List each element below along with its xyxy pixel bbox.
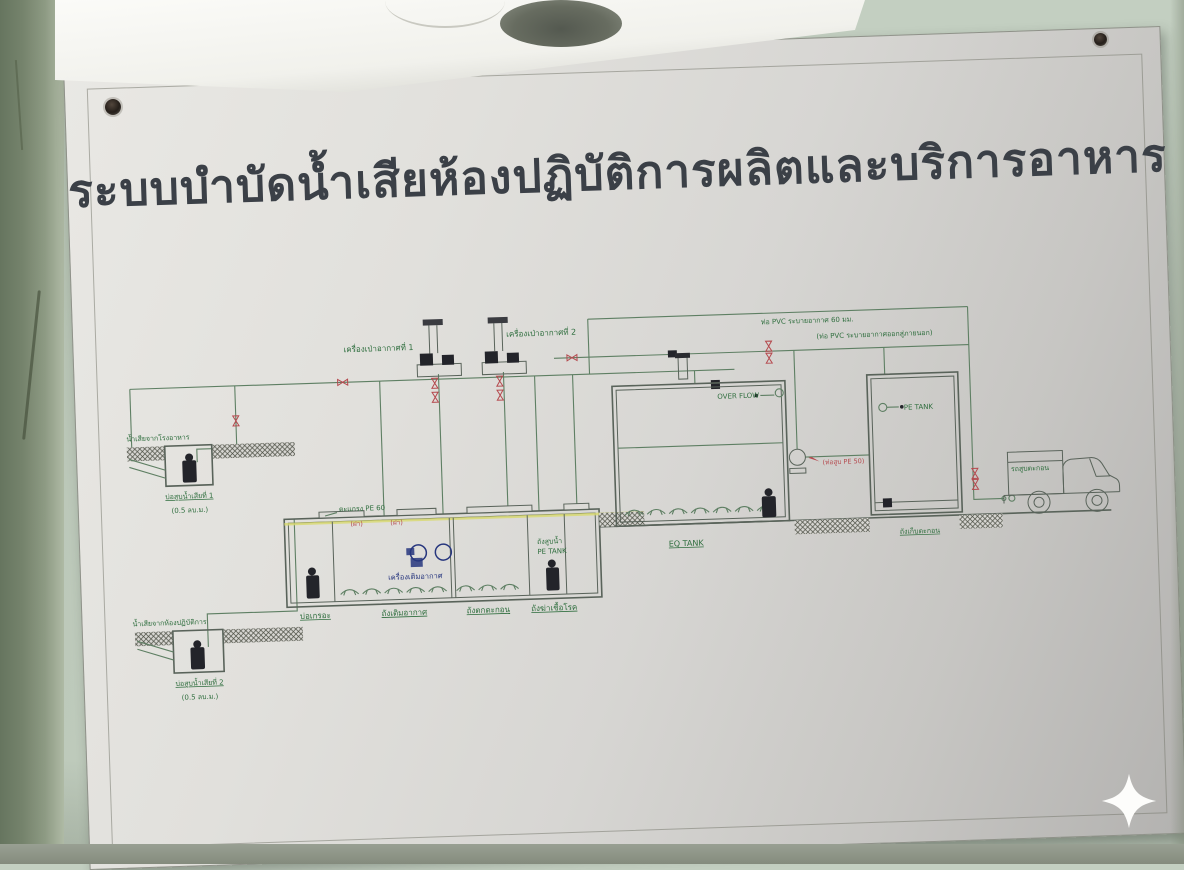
label-compartment-2: ถังเติมอากาศ (381, 608, 427, 619)
diagram-svg: เครื่องเป่าอากาศที่ 1 เครื่องเป่าอากาศที… (100, 286, 1143, 740)
label-pit1-source: น้ำเสียจากโรงอาหาร (126, 430, 190, 443)
label-vent-note-2: (ท่อ PVC ระบายอากาศออกสู่ภายนอก) (816, 329, 933, 341)
sparkle-icon (1098, 770, 1160, 832)
label-tank1-inner: OVER FLOW (717, 392, 759, 401)
signboard: ระบบบำบัดน้ำเสียห้องปฏิบัติการผลิตและบริ… (63, 26, 1184, 870)
board-bottom-edge (0, 844, 1184, 864)
treatment-tank (284, 501, 647, 607)
label-blower-1: เครื่องเป่าอากาศที่ 1 (343, 341, 413, 354)
sump-pit-1 (127, 442, 296, 488)
label-clearwell-2: PE TANK (537, 547, 567, 556)
sludge-tank (867, 371, 1003, 532)
air-blower-2 (481, 316, 527, 374)
label-aerator-blue: เครื่องเติมอากาศ (388, 570, 443, 582)
valves (231, 334, 979, 514)
label-clearwell-1: ถังสูบน้ำ (537, 534, 563, 546)
screw-top-left (105, 99, 121, 115)
label-vent-note-1: ท่อ PVC ระบายอากาศ 60 มม. (761, 315, 854, 326)
screw-top-right (1094, 33, 1107, 46)
label-pit2-source: น้ำเสียจากห้องปฏิบัติการ (132, 615, 207, 628)
label-compartment-3: ถังตกตะกอน (466, 605, 510, 615)
label-pit1-volume: (0.5 ลบ.ม.) (171, 506, 208, 515)
label-cover-tag-2: (ฝา) (390, 518, 403, 526)
fixture-seam (385, 0, 505, 28)
eq-tank (611, 350, 790, 527)
label-blower-2: เครื่องเป่าอากาศที่ 2 (506, 326, 576, 339)
air-blower-1 (416, 318, 462, 376)
label-pump-note: (ท่อสูบ PE 50) (822, 457, 864, 466)
label-cover-tag-1: (ฝา) (350, 520, 363, 528)
label-tank2-name: ถังเก็บตะกอน (900, 526, 941, 536)
label-pit2-name: บ่อสูบน้ำเสียที่ 2 (175, 675, 223, 688)
wall-corner-edge (0, 0, 64, 864)
piping-network (128, 302, 1115, 649)
label-tank2-inner: PE TANK (904, 403, 934, 412)
label-compartment-4: ถังฆ่าเชื้อโรค (531, 601, 577, 614)
label-truck-text: รถสูบตะกอน (1011, 464, 1050, 473)
wall-crack (22, 290, 41, 439)
drain-hole (500, 0, 622, 47)
label-pit1-name: บ่อสูบน้ำเสียที่ 1 (165, 489, 213, 502)
vacuum-truck (1002, 449, 1120, 515)
label-tank1-name: EQ TANK (669, 538, 705, 548)
label-pit2-volume: (0.5 ลบ.ม.) (182, 693, 219, 702)
wall-right-shade (1170, 0, 1184, 864)
label-screen-note: ตะแกรง PE 60 (339, 504, 385, 514)
wall-crack (15, 60, 23, 150)
sump-pit-2 (135, 627, 304, 675)
label-compartment-1: บ่อเกรอะ (300, 611, 331, 621)
